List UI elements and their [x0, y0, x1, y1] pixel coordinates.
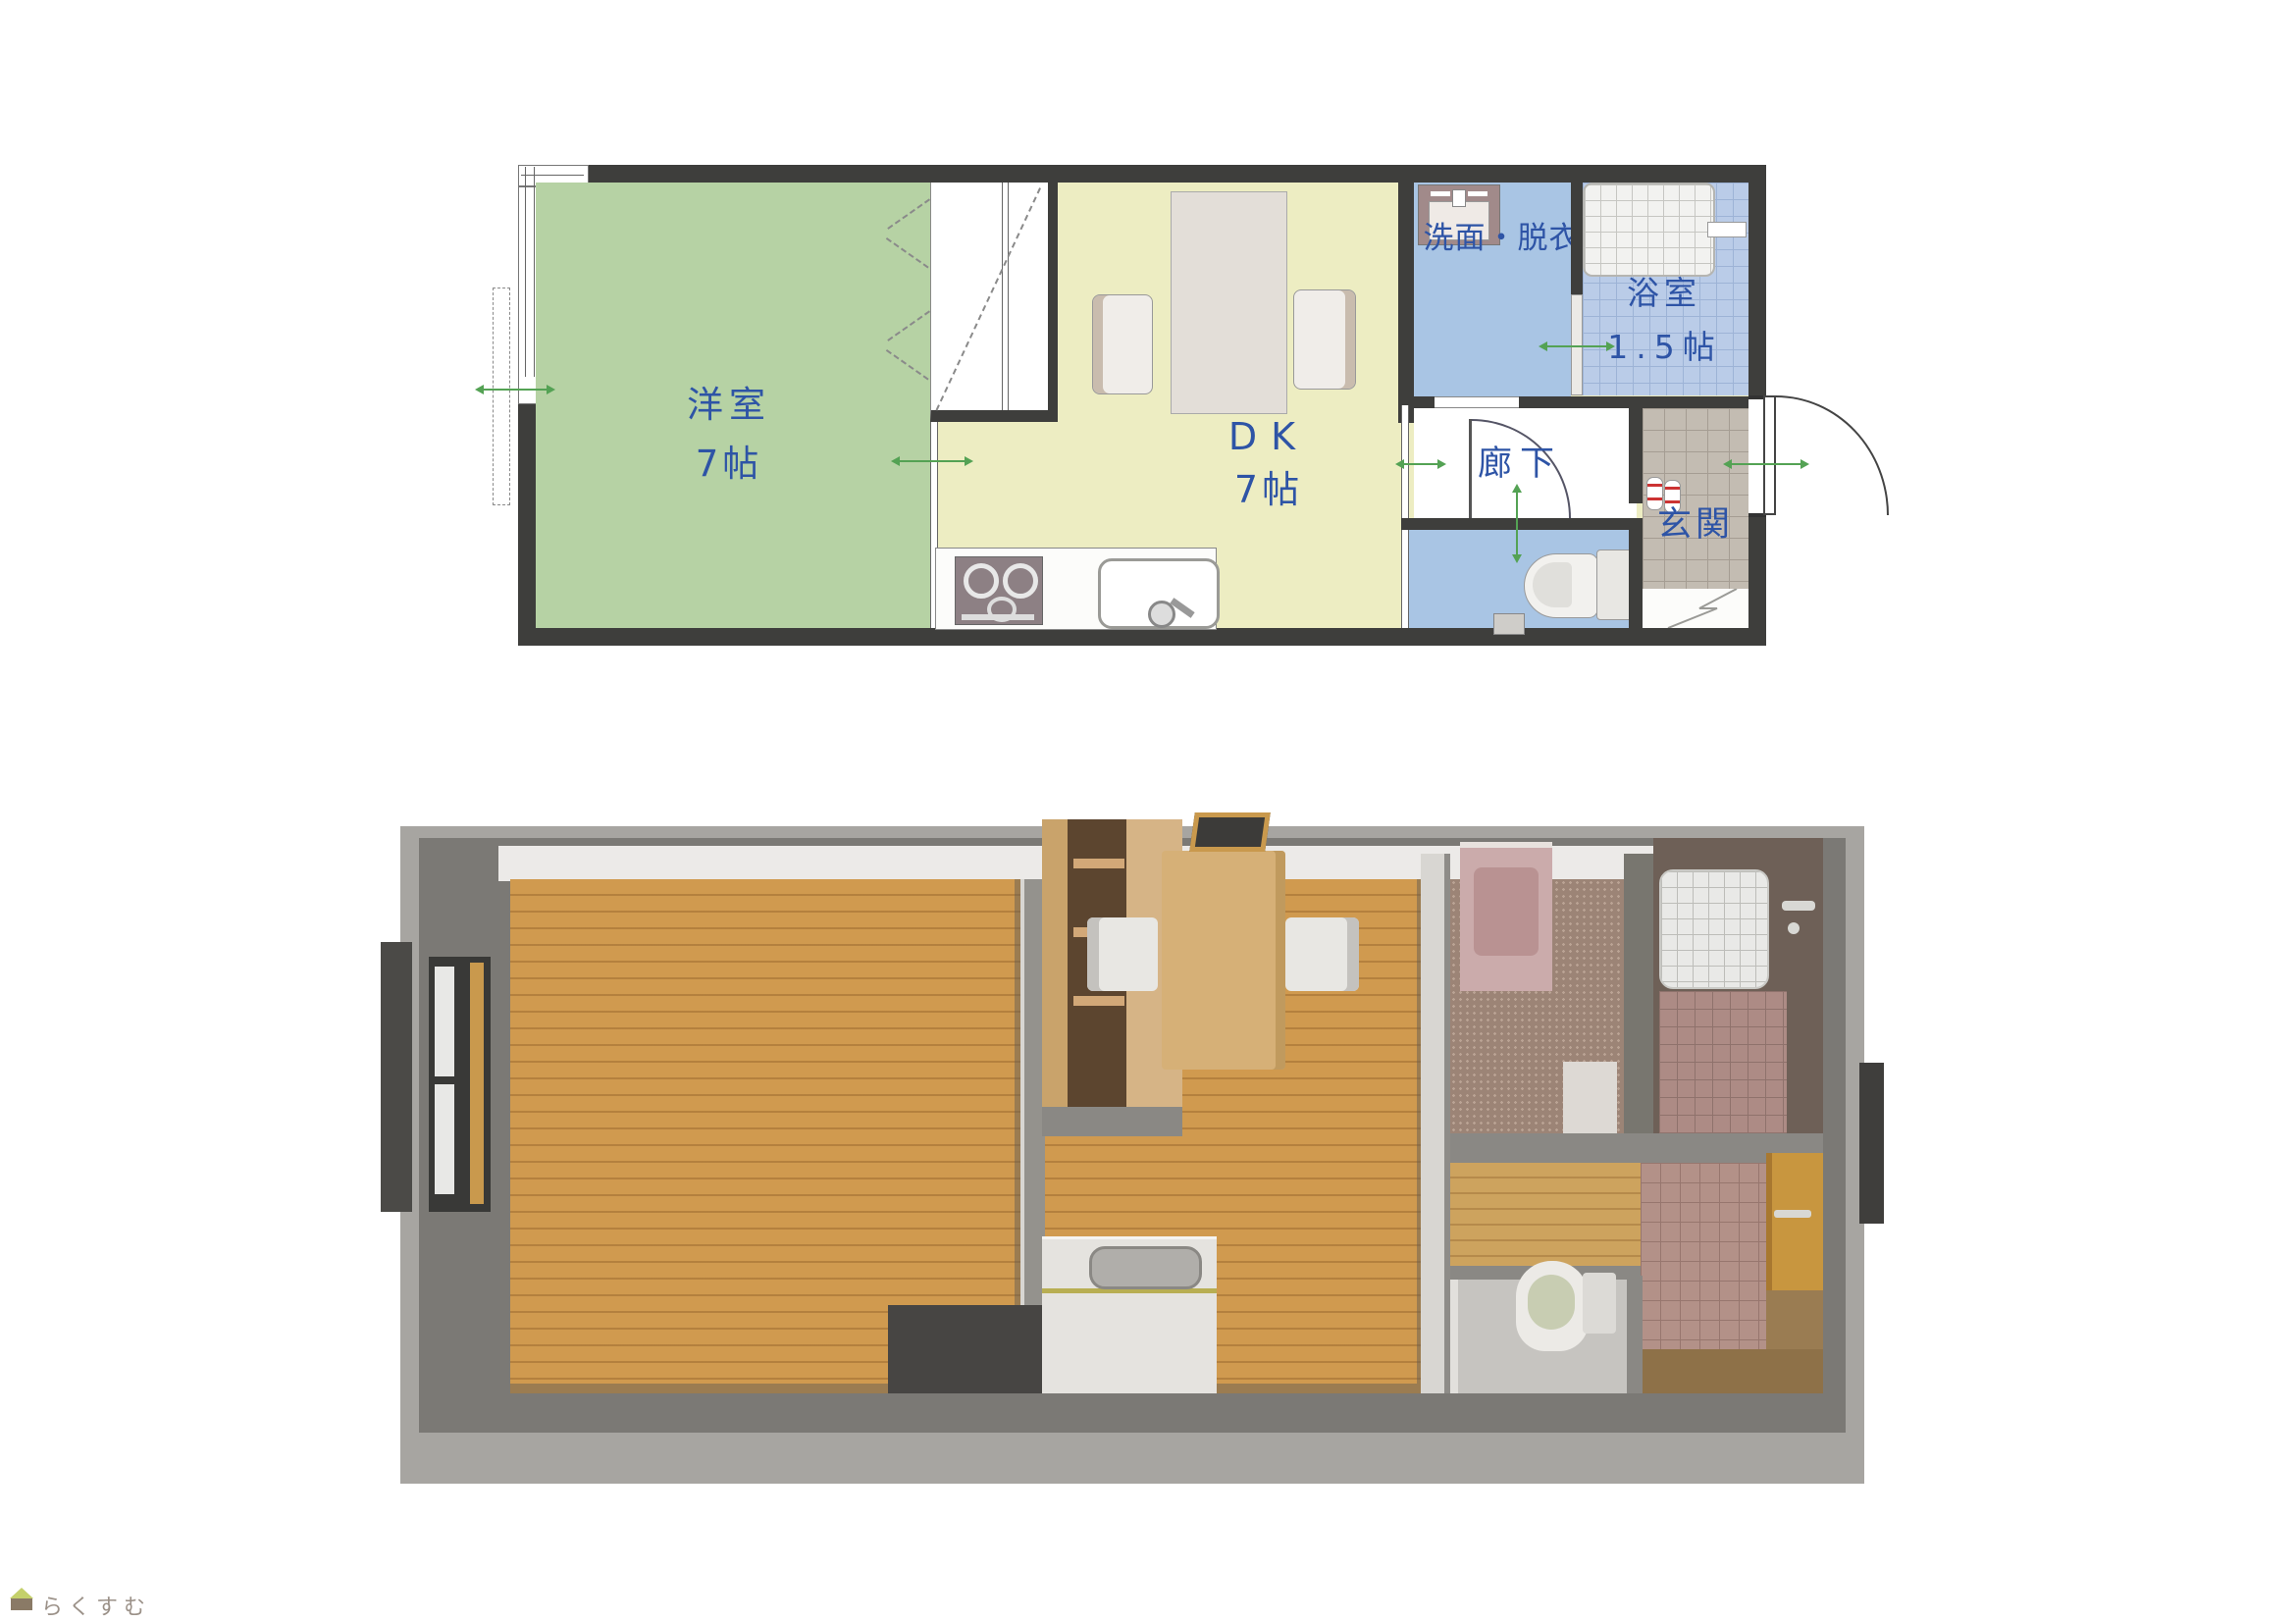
bathfloor3d	[1659, 991, 1787, 1133]
washroom3d-door	[1563, 1062, 1617, 1133]
move-arrow	[1516, 488, 1518, 559]
closet	[930, 183, 1058, 422]
closet-track-line	[1008, 183, 1009, 410]
closet-track-line	[1002, 183, 1003, 410]
room-size-dk: 7帖	[1171, 471, 1367, 508]
wall3d-dk-right	[1421, 854, 1450, 1393]
room-label-western: 洋室	[631, 387, 827, 423]
washroom-door-gap	[1435, 396, 1519, 408]
wall-washroom-bath	[1571, 183, 1583, 294]
kitchen-counter	[935, 548, 1217, 630]
kitchen3d-sink	[1089, 1246, 1202, 1289]
window3d-left	[429, 957, 491, 1212]
toilet3d-tank	[1583, 1273, 1616, 1334]
house-icon	[10, 1588, 33, 1611]
move-arrow	[1727, 463, 1805, 465]
shower3d	[1782, 901, 1815, 911]
move-arrow	[1399, 463, 1442, 465]
washroom3d-sink	[1460, 842, 1552, 991]
wall3d-toilet-genkan	[1627, 1276, 1643, 1393]
window3d-top	[1189, 812, 1271, 852]
room-size-western: 7帖	[631, 445, 827, 482]
table3d	[1162, 851, 1285, 1070]
dining-chair	[1092, 294, 1153, 394]
room-label-dk: DK	[1171, 418, 1367, 455]
stove-icon	[955, 556, 1043, 625]
genkan3d-tile	[1641, 1163, 1766, 1349]
entrance-door-leaf	[1763, 395, 1776, 515]
toilet3d	[1516, 1261, 1589, 1351]
entrance-door3d	[1766, 1153, 1823, 1290]
wall-toilet-top	[1401, 518, 1643, 530]
chair3d	[1285, 917, 1359, 991]
genkan-step	[1643, 589, 1748, 628]
wall3d-wash-bath	[1624, 854, 1653, 1133]
chair3d	[1087, 917, 1158, 991]
move-arrow	[895, 460, 969, 462]
room-label-bath: 浴室	[1586, 277, 1743, 309]
toilet-paper-holder	[1493, 613, 1525, 635]
floor-plan-2d: 洋室 7帖 DK 7帖	[518, 165, 1766, 646]
balcony-tab-left	[381, 942, 412, 1212]
door-tab-right	[1859, 1063, 1884, 1224]
wall3d-closet-bottom	[1042, 1107, 1182, 1136]
toilet-icon	[1524, 553, 1598, 618]
watermark: らくすむ	[10, 1588, 304, 1617]
move-arrow	[1542, 345, 1611, 347]
bath-control-panel	[1707, 222, 1747, 237]
genkan3d-floor	[1643, 1349, 1823, 1393]
bathtub-icon	[1583, 183, 1715, 277]
room-label-hallway: 廊下	[1446, 447, 1593, 482]
kitchen3d-base	[888, 1305, 1042, 1393]
watermark-text: らくすむ	[41, 1590, 151, 1621]
shower3d-knob	[1788, 922, 1800, 934]
window-left-outline	[493, 288, 510, 505]
room-label-genkan: 玄関	[1641, 508, 1750, 543]
sliding-partition-hall	[1401, 405, 1409, 628]
move-arrow	[479, 389, 551, 391]
genkan3d-floor2	[1766, 1290, 1823, 1349]
wall-hall-genkan	[1629, 408, 1643, 503]
sink-icon	[1098, 558, 1220, 629]
entrance-door-arc	[1776, 395, 1889, 515]
step-zigzag	[1643, 589, 1748, 628]
closet-diagonal-dash	[936, 187, 1041, 410]
wall-dk-right	[1398, 183, 1414, 423]
bathtub3d	[1659, 869, 1769, 989]
dining-table	[1171, 191, 1287, 414]
floor-plan-page: 洋室 7帖 DK 7帖	[0, 0, 2296, 1623]
floor-plan-3d	[400, 826, 1864, 1484]
dining-chair	[1293, 289, 1356, 390]
